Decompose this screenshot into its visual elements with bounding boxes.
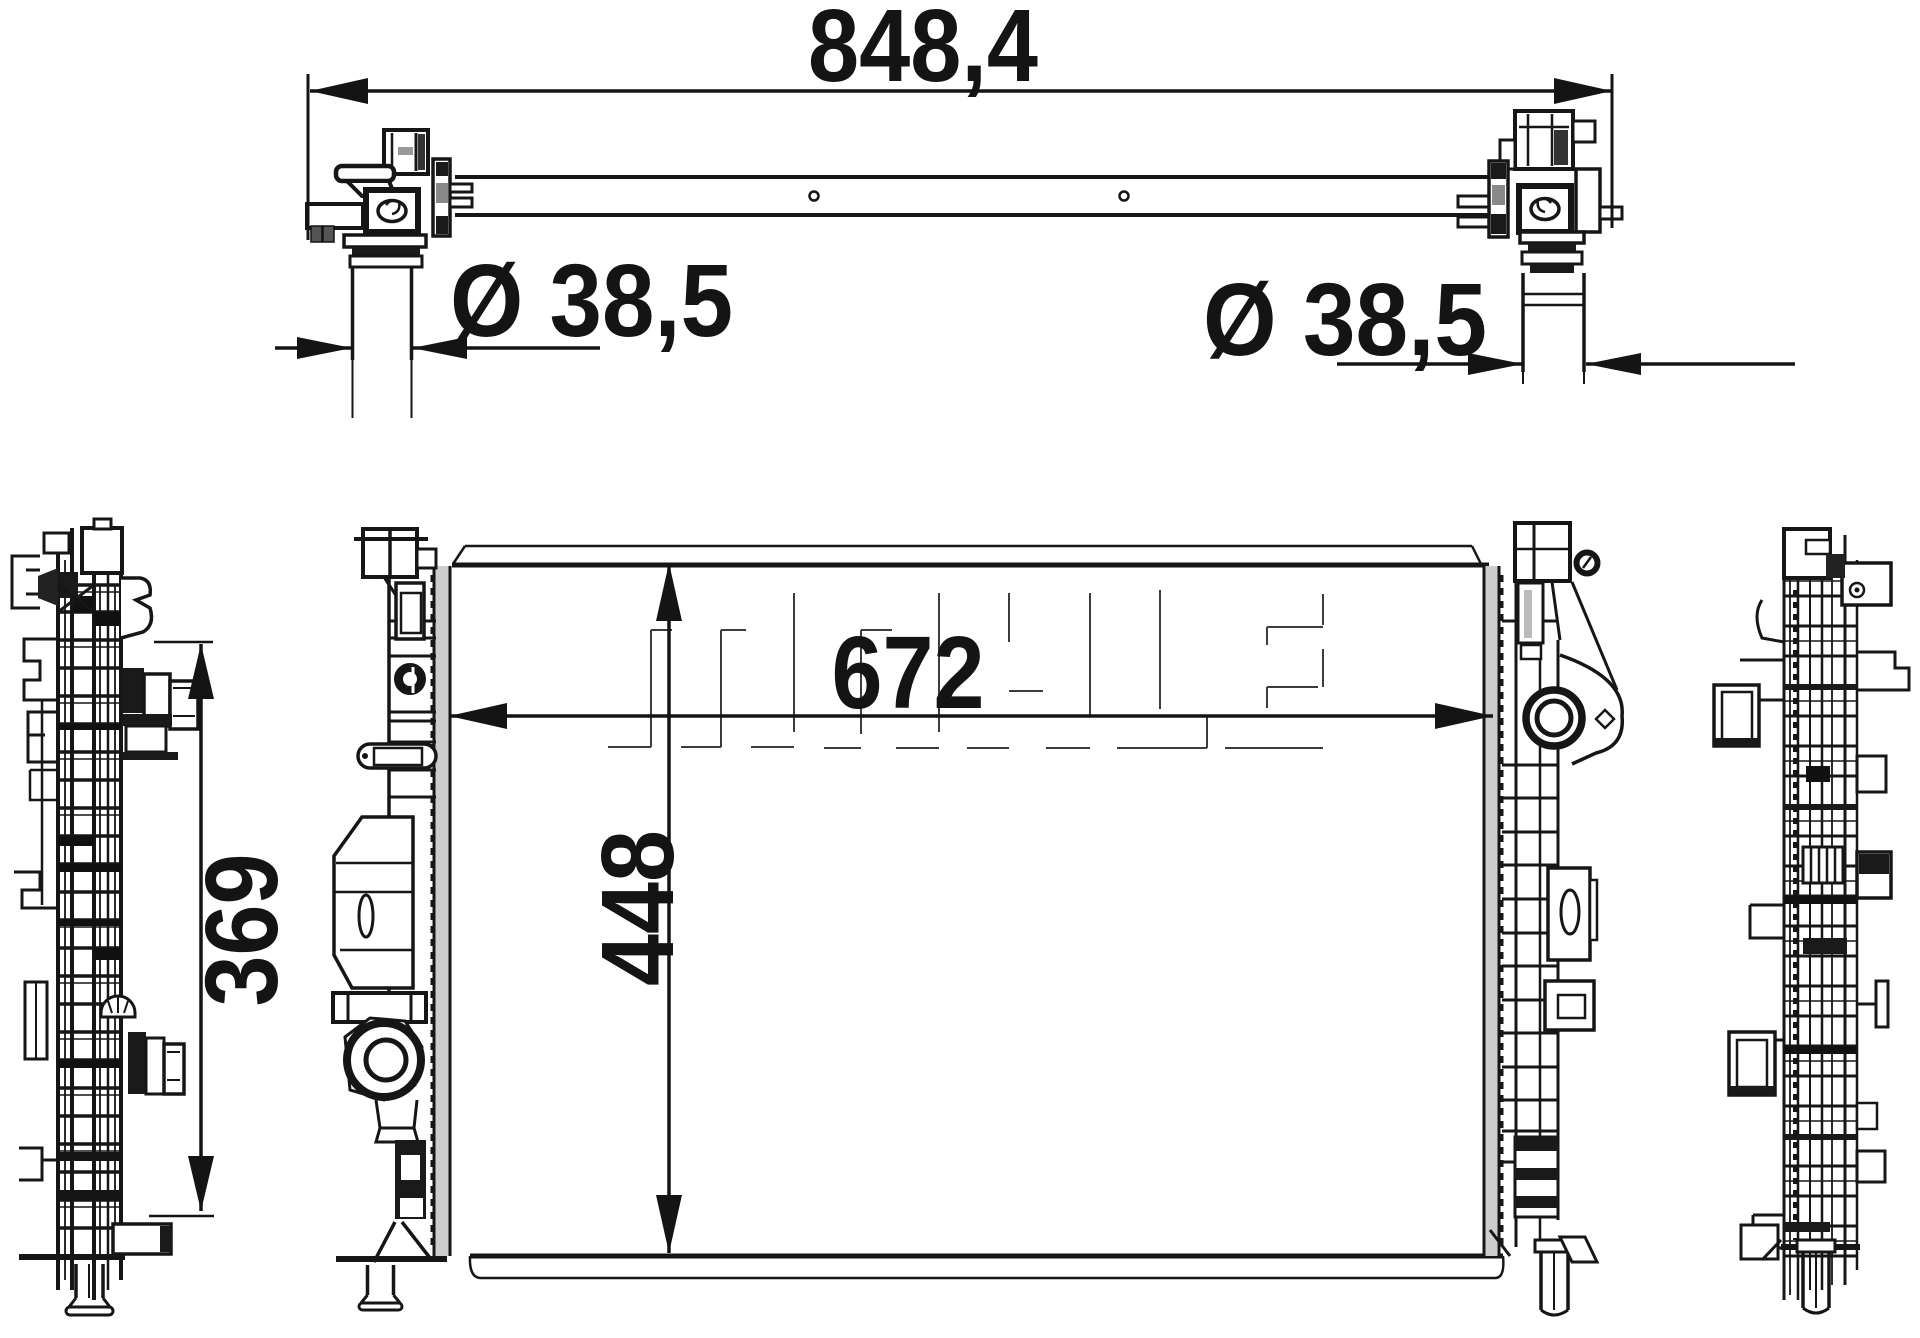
svg-text:Ø 38,5: Ø 38,5 (1203, 262, 1487, 377)
svg-text:672: 672 (832, 615, 985, 730)
svg-text:848,4: 848,4 (808, 0, 1038, 103)
svg-text:Ø 38,5: Ø 38,5 (450, 243, 733, 358)
svg-text:369: 369 (184, 854, 299, 1007)
svg-text:448: 448 (580, 830, 695, 986)
